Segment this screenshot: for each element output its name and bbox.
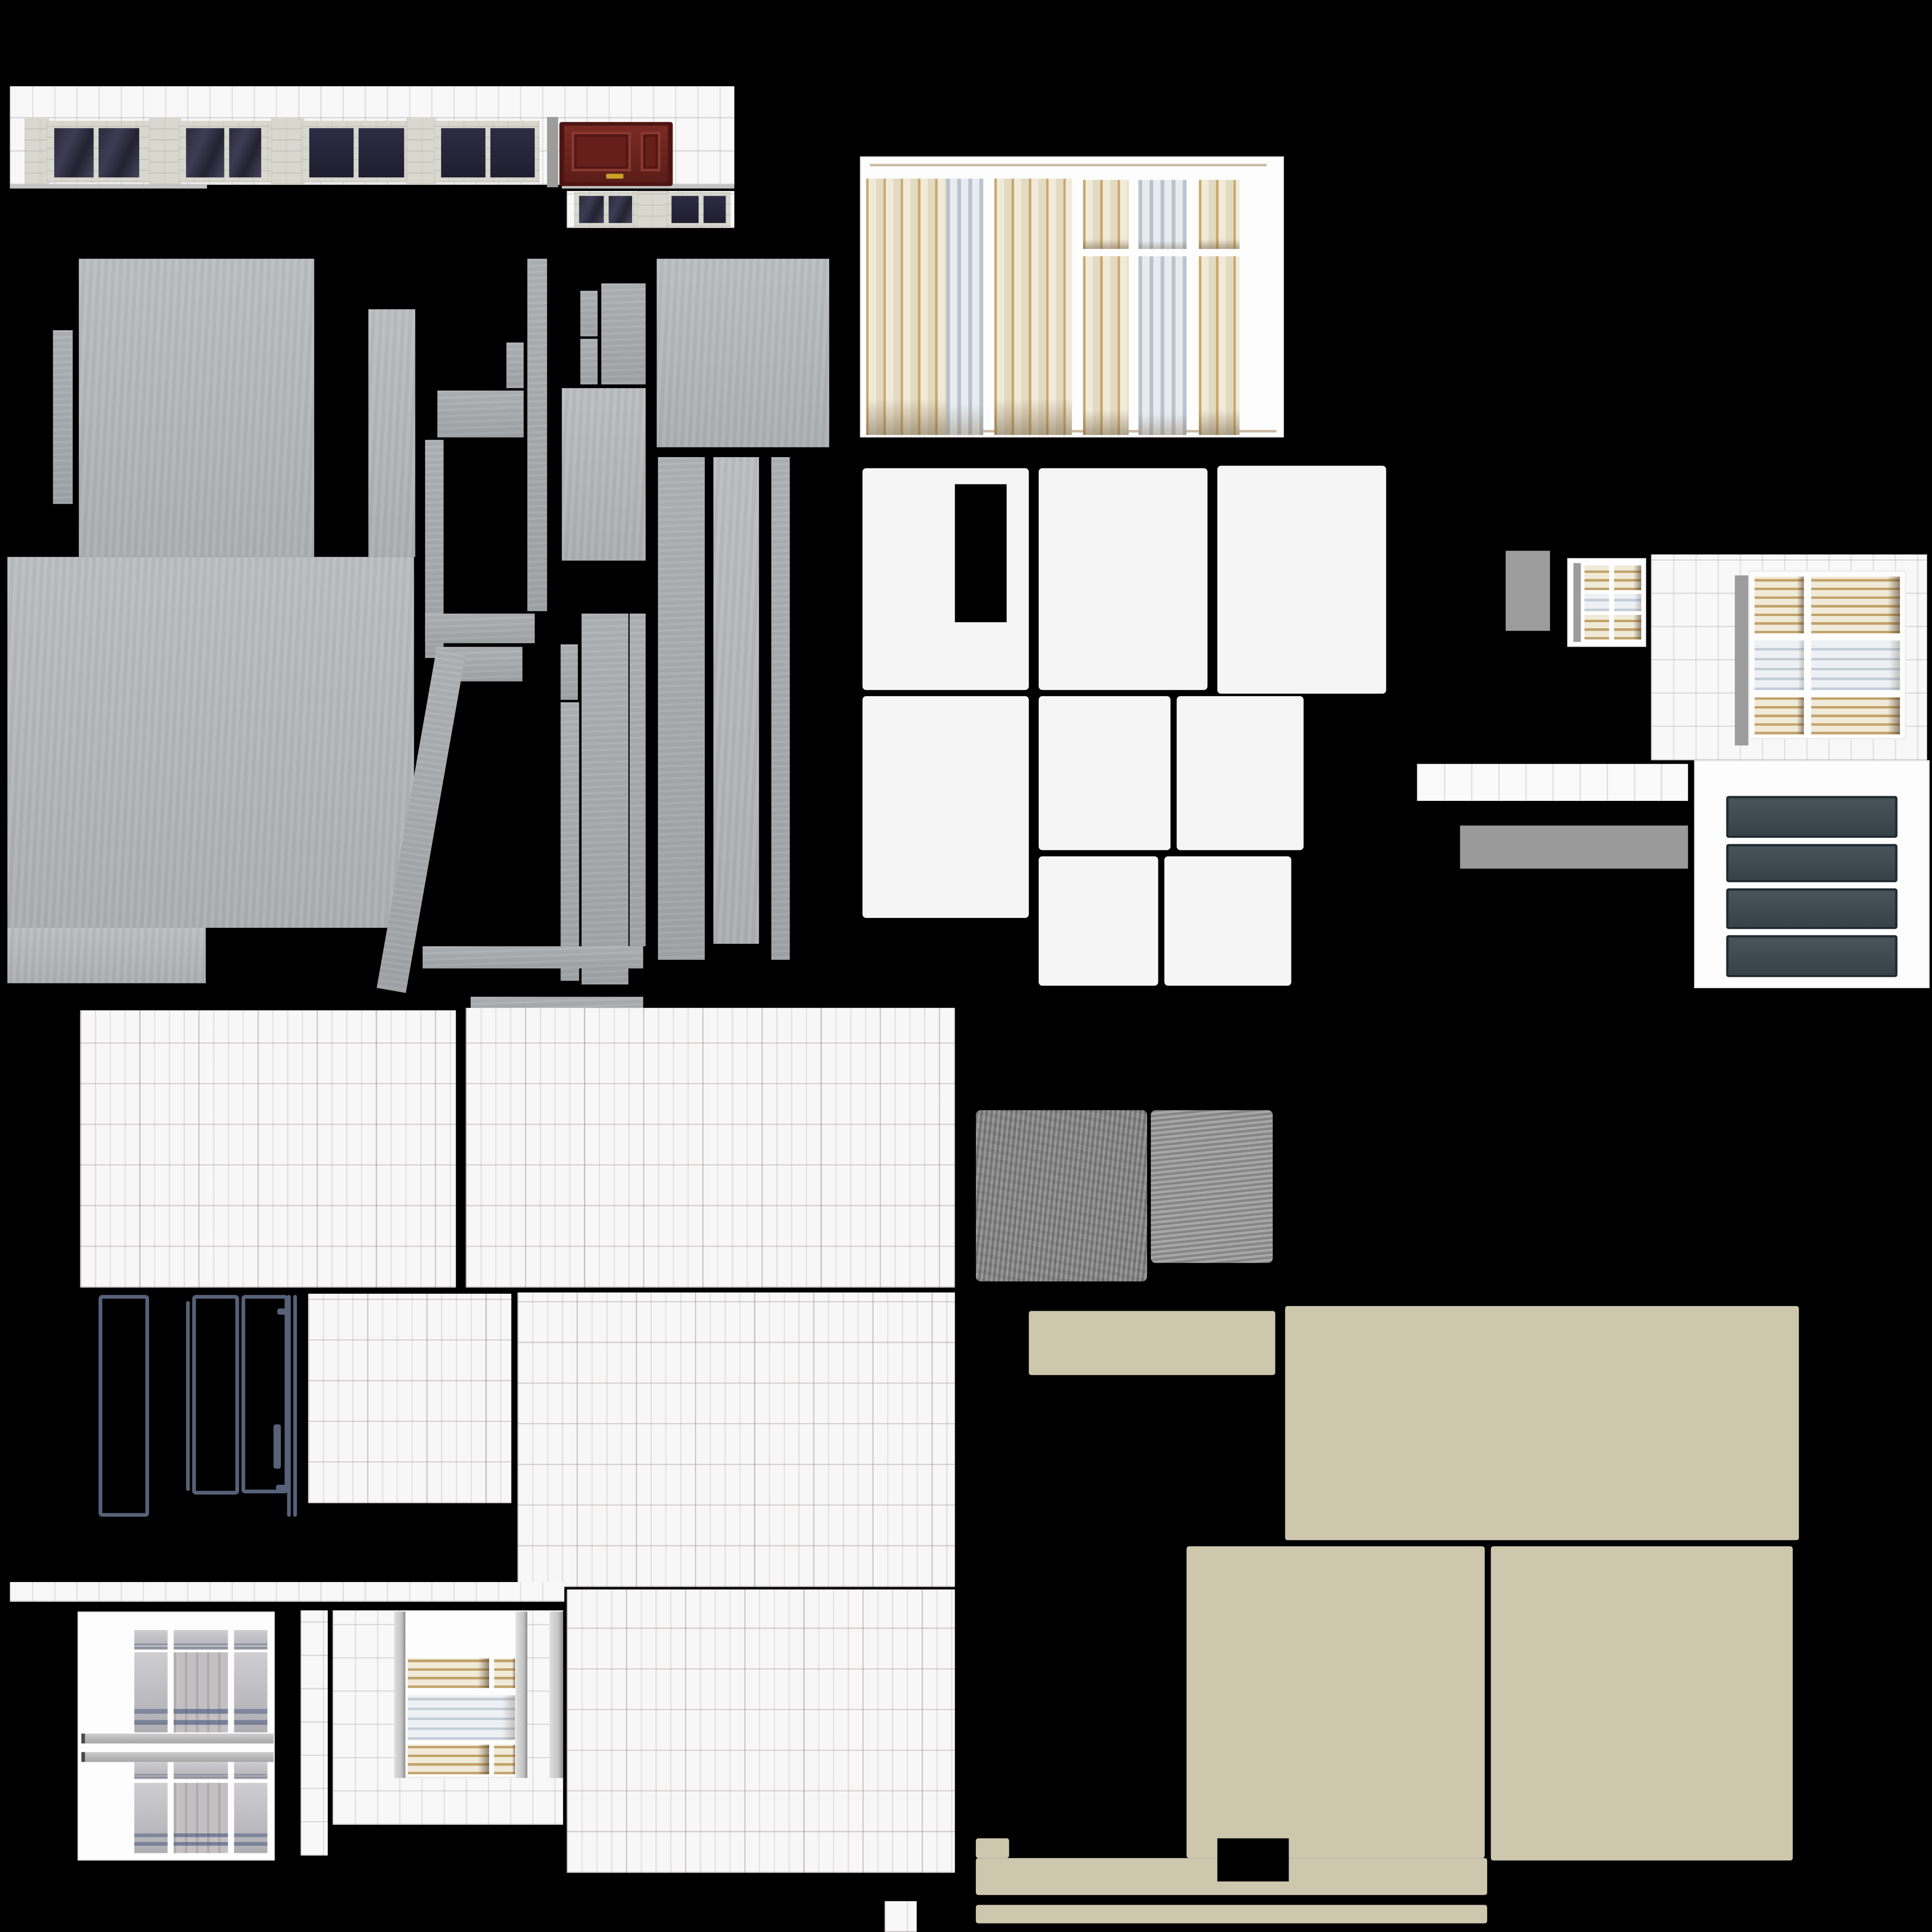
white-panel-a-cutout <box>955 484 1007 623</box>
texture-atlas-canvas <box>0 0 1932 1932</box>
frame-bar-a <box>287 1295 291 1516</box>
rotwin-band-top-n <box>494 1658 515 1688</box>
window-pane-1a <box>54 128 94 177</box>
tile-strip-narrow <box>300 1610 327 1856</box>
gray-long-bar <box>527 259 547 611</box>
slat-3 <box>1726 888 1898 929</box>
gray-right-strip-c <box>771 457 790 960</box>
stone-pillar-3 <box>407 118 436 185</box>
concrete-left-foot <box>8 928 206 983</box>
gray-right-arm <box>630 614 646 946</box>
rotwin-pillar-left <box>394 1612 406 1778</box>
gray-l-horizontal <box>423 946 643 968</box>
beige-lower-left <box>1187 1546 1485 1858</box>
tile-panel-3 <box>308 1294 511 1503</box>
gray-tall-rect <box>601 283 646 384</box>
frame-outline-3 <box>241 1295 288 1493</box>
curtain-col4-bottom <box>1139 256 1187 435</box>
door-panel-small <box>641 132 660 172</box>
facade-win-low-center <box>174 1783 228 1853</box>
frame-outline-1 <box>99 1295 149 1516</box>
curtain-pane-left-sheer <box>946 179 983 435</box>
facade-win-low-left-top <box>134 1762 168 1779</box>
door-keyhole <box>606 174 624 178</box>
window-pane-6a <box>672 196 699 223</box>
rotwin-band-bot-n <box>494 1745 515 1774</box>
curtain-col4-top <box>1139 180 1187 249</box>
white-panel-f <box>1177 696 1304 850</box>
rotwin-pillar-far <box>550 1612 563 1778</box>
rotwin2-r3a <box>1755 698 1804 734</box>
window-pane-6b <box>704 196 726 223</box>
gray-bar-right <box>1460 825 1688 868</box>
slat-1 <box>1726 796 1898 838</box>
tile-panel-2 <box>466 1008 955 1288</box>
gray-right-strip-a <box>658 457 705 960</box>
rotwin2-r1b <box>1811 577 1900 633</box>
beige-big-block <box>1285 1306 1799 1540</box>
tile-tiny <box>885 1901 917 1932</box>
facade-win-low-left <box>134 1783 168 1853</box>
curtain-pane-2 <box>994 179 1072 435</box>
rotwin-pillar-right <box>516 1612 528 1778</box>
facade-sill-1 <box>81 1733 274 1743</box>
fur-texture-light <box>1151 1110 1273 1263</box>
facade-win-low-right-top <box>234 1762 267 1779</box>
beige-podium-column <box>976 1838 1009 1858</box>
stone-pillar-5 <box>637 191 669 228</box>
curtain-col3-bottom <box>1083 256 1129 435</box>
stone-pillar-2 <box>271 118 305 185</box>
door-panel-large <box>572 132 631 172</box>
gray-block-right <box>1506 551 1550 631</box>
facade-win-up-center-top <box>174 1630 228 1650</box>
beige-bar <box>1029 1311 1275 1375</box>
window-pane-3a <box>309 128 354 177</box>
facade-win-up-center <box>174 1652 228 1732</box>
window-pane-2a <box>186 128 224 177</box>
slat-4 <box>1726 935 1898 977</box>
facade-sill-2 <box>81 1752 274 1762</box>
curtain-col5-top <box>1199 180 1240 249</box>
gray-wide-bar <box>582 614 628 984</box>
rotwin2-r2a <box>1755 641 1804 690</box>
curtain-col3-top <box>1083 180 1129 249</box>
gray-separator <box>547 117 558 187</box>
facade-win-low-right <box>234 1783 267 1853</box>
beige-thin-bar <box>976 1905 1487 1923</box>
gray-right-strip-b <box>713 457 759 944</box>
facade-win-up-right-top <box>234 1630 267 1650</box>
white-panel-d <box>863 696 1029 918</box>
rotwin2-bar <box>1735 575 1749 745</box>
window-pane-4b <box>491 128 535 177</box>
white-panel-c <box>1217 466 1386 693</box>
tile-panel-5 <box>567 1590 955 1873</box>
white-panel-h <box>1165 856 1291 985</box>
gray-small-rect <box>507 342 524 388</box>
frame-3-handle <box>274 1424 281 1469</box>
rotwin2-r1a <box>1755 577 1804 633</box>
mini-window-bar <box>1574 563 1581 642</box>
white-panel-b <box>1039 468 1207 690</box>
stone-pillar-1 <box>149 118 181 185</box>
frame-outline-2 <box>192 1295 239 1494</box>
mini-band-gap <box>1609 566 1614 640</box>
window-pane-3b <box>358 128 404 177</box>
stone-pillar-0 <box>25 118 49 185</box>
slat-2 <box>1726 844 1898 882</box>
frame-3-dot-top <box>277 1308 287 1315</box>
rotwin-band-top <box>408 1658 489 1688</box>
beige-lower-right <box>1491 1546 1793 1860</box>
wall-strip-bottom <box>10 1582 564 1602</box>
gray-wide-rect <box>437 391 524 437</box>
concrete-main-mass <box>8 557 414 928</box>
window-pane-5b <box>608 196 632 223</box>
gray-large-block <box>562 388 646 561</box>
rotwin2-r2b <box>1811 641 1900 690</box>
gray-rect-2a <box>580 291 598 336</box>
window-pane-1b <box>99 128 139 177</box>
fur-texture-dark <box>976 1110 1147 1282</box>
frame-3-dot-bottom <box>276 1485 287 1491</box>
wall-strip-top-shadow-left <box>10 185 207 189</box>
concrete-strip-left <box>53 330 73 504</box>
frame-bar-b <box>293 1295 297 1516</box>
concrete-strip-right <box>368 309 415 557</box>
tile-panel-1 <box>80 1010 456 1288</box>
window-pane-5a <box>579 196 604 223</box>
gray-notch-piece <box>425 614 534 643</box>
curtain-col5-bottom <box>1199 256 1240 435</box>
window-pane-4a <box>441 128 485 177</box>
facade-win-up-right <box>234 1652 267 1732</box>
gray-small-vert <box>561 644 578 700</box>
big-window-trim-top <box>870 164 1266 166</box>
tile-panel-4 <box>517 1292 955 1587</box>
white-panel-e <box>1039 696 1171 850</box>
beige-podium-hole <box>1217 1838 1289 1881</box>
white-panel-g <box>1039 856 1158 985</box>
facade-win-up-left-top <box>134 1630 168 1650</box>
facade-win-up-left <box>134 1652 168 1732</box>
concrete-top-rect <box>79 259 314 557</box>
frame-outline-2-edge <box>186 1301 190 1491</box>
facade-win-low-center-top <box>174 1762 228 1779</box>
gray-rect-2b <box>580 339 598 384</box>
gray-parallelogram <box>561 702 579 981</box>
window-pane-2b <box>229 128 261 177</box>
tile-strip-right <box>1417 764 1688 801</box>
rotwin2-r3b <box>1811 698 1900 734</box>
gray-big-square <box>657 259 829 448</box>
rotwin-band-mid <box>408 1695 515 1740</box>
rotwin-band-bot <box>408 1745 489 1774</box>
